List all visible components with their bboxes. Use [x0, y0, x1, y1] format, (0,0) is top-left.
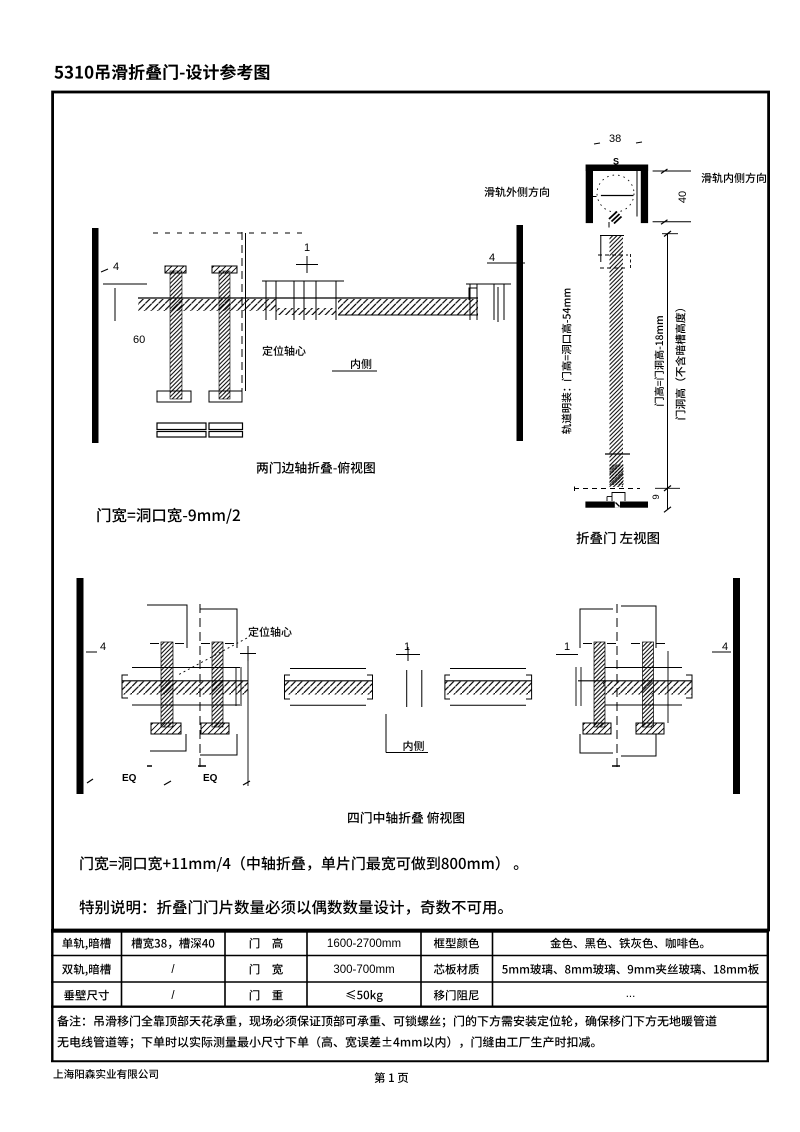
- svg-text:300-700mm: 300-700mm: [333, 964, 394, 976]
- svg-text:1600-2700mm: 1600-2700mm: [327, 938, 401, 950]
- svg-text:1: 1: [564, 641, 570, 653]
- svg-text:...: ...: [626, 988, 636, 1000]
- svg-text:4: 4: [113, 261, 119, 273]
- svg-text:S: S: [613, 164, 619, 173]
- svg-text:60: 60: [133, 334, 145, 346]
- svg-text:38: 38: [609, 133, 621, 145]
- svg-text:/: /: [171, 990, 175, 1002]
- svg-text:1: 1: [304, 242, 310, 254]
- svg-text:4: 4: [489, 252, 495, 264]
- svg-text:4: 4: [100, 641, 106, 653]
- svg-text:1: 1: [404, 641, 410, 653]
- svg-text:40: 40: [677, 191, 689, 203]
- svg-text:EQ: EQ: [203, 773, 218, 784]
- svg-text:9: 9: [651, 494, 662, 499]
- svg-text:/: /: [171, 964, 175, 976]
- svg-text:4: 4: [722, 641, 728, 653]
- svg-text:EQ: EQ: [122, 773, 137, 784]
